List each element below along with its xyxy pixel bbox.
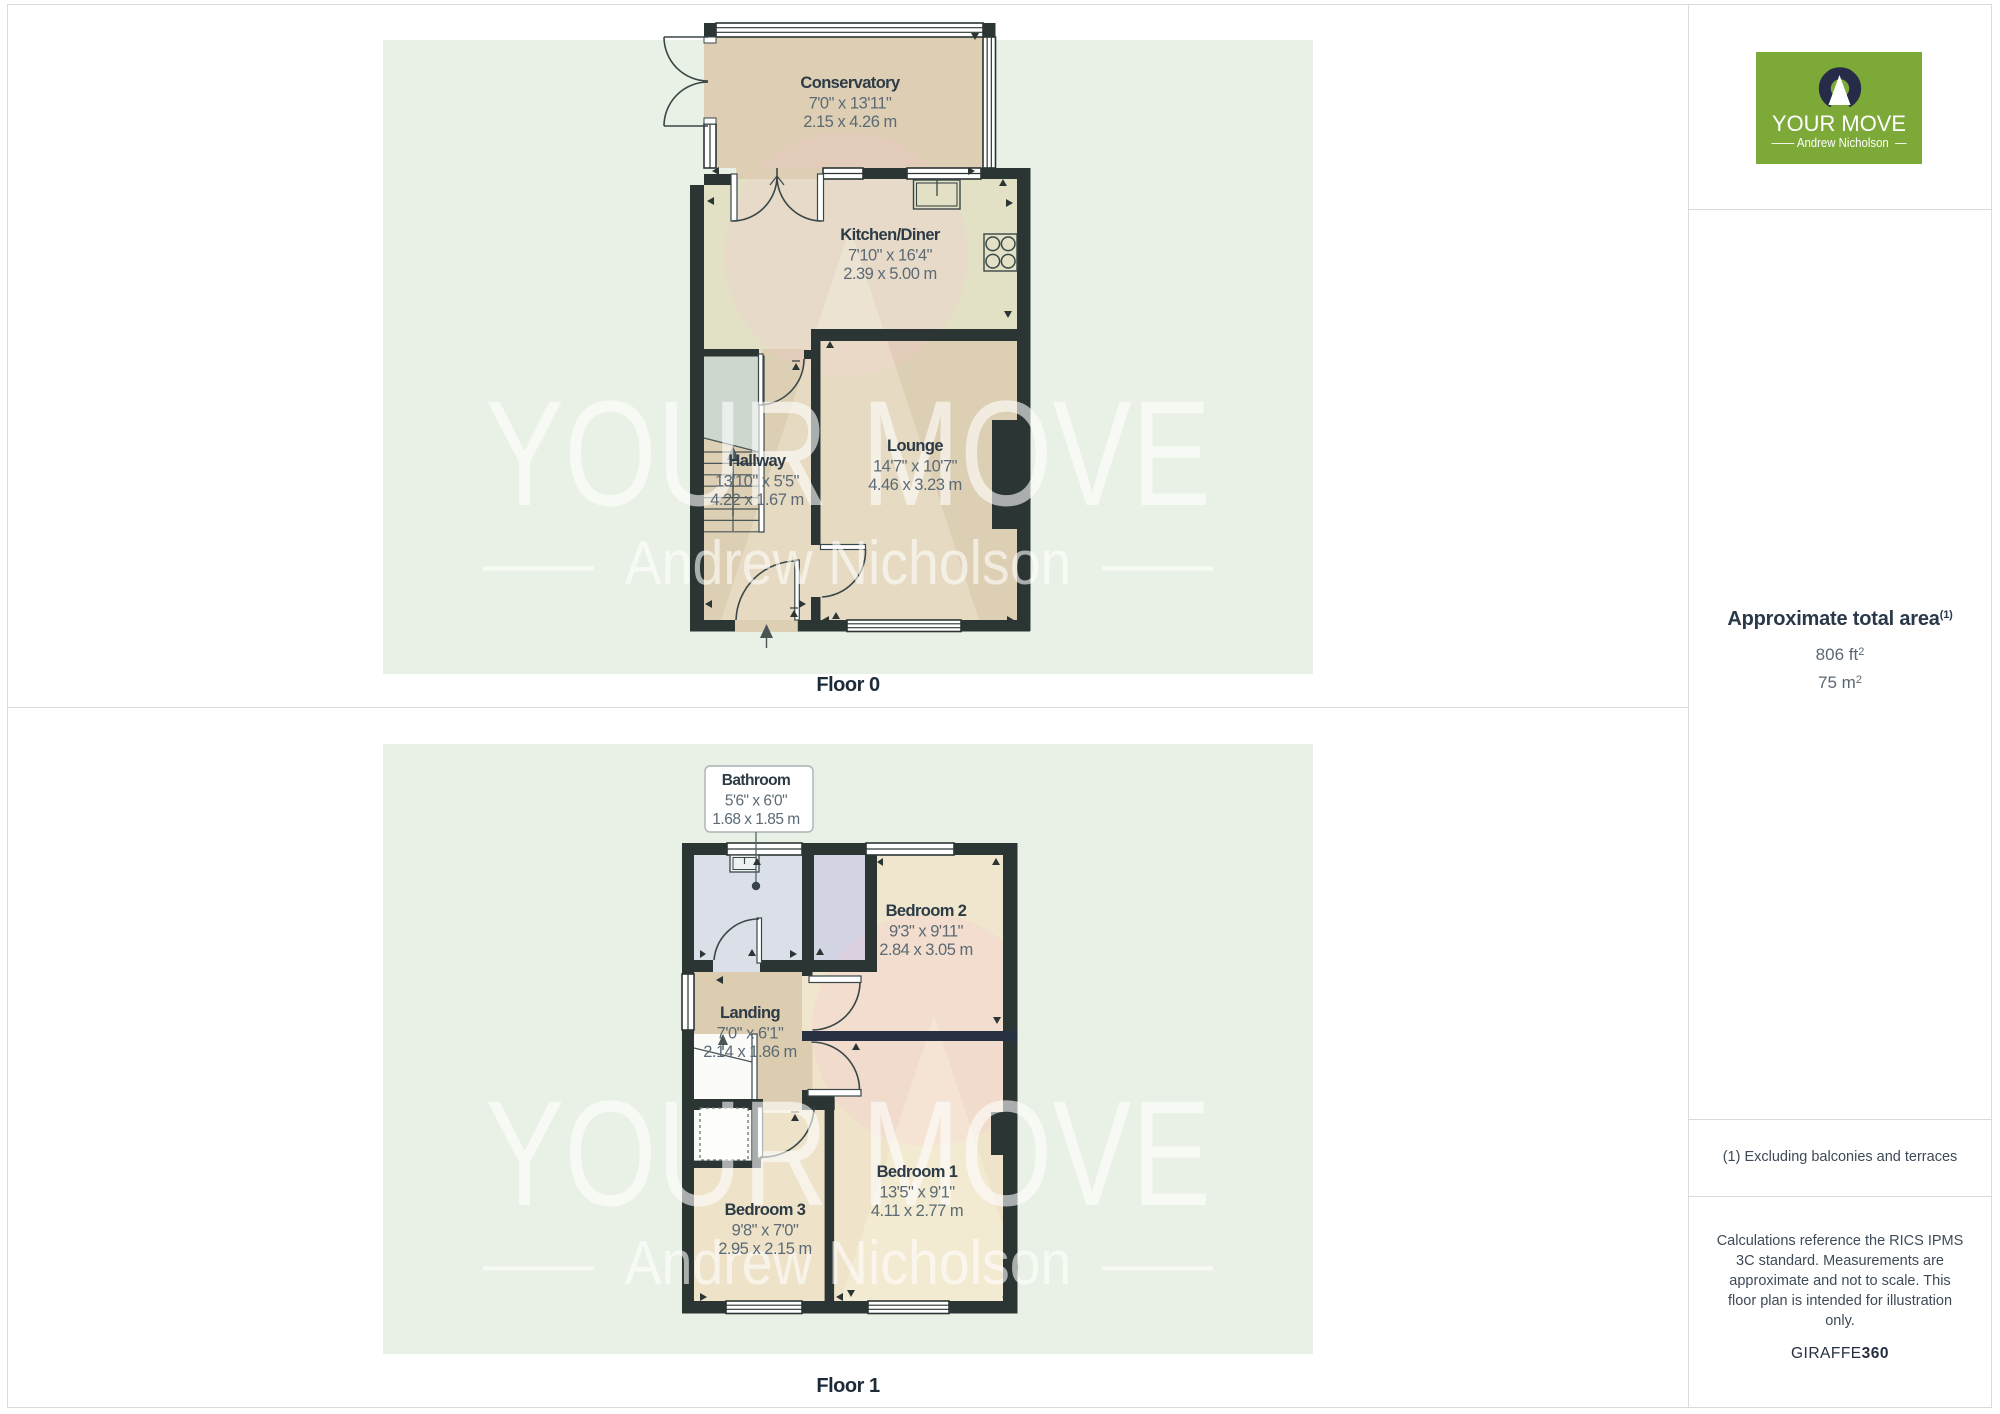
- svg-text:7'0" x 13'11": 7'0" x 13'11": [809, 95, 892, 113]
- svg-text:9'3" x 9'11": 9'3" x 9'11": [889, 923, 964, 941]
- svg-text:1.68 x 1.85 m: 1.68 x 1.85 m: [712, 811, 799, 828]
- svg-text:7'0" x 6'1": 7'0" x 6'1": [717, 1025, 784, 1043]
- svg-text:4.11 x 2.77 m: 4.11 x 2.77 m: [871, 1202, 963, 1220]
- svg-text:2.84 x 3.05 m: 2.84 x 3.05 m: [879, 941, 972, 959]
- svg-text:Hallway: Hallway: [728, 452, 787, 470]
- svg-text:Landing: Landing: [720, 1004, 780, 1022]
- svg-text:—— Andrew Nicholson ——: —— Andrew Nicholson ——: [483, 1229, 1213, 1298]
- svg-text:2.15 x 4.26 m: 2.15 x 4.26 m: [803, 113, 896, 131]
- svg-text:9'8" x 7'0": 9'8" x 7'0": [732, 1222, 799, 1240]
- svg-text:4.22 x 1.67 m: 4.22 x 1.67 m: [710, 491, 803, 509]
- svg-text:Bathroom: Bathroom: [722, 772, 790, 789]
- svg-text:14'7" x 10'7": 14'7" x 10'7": [873, 458, 958, 476]
- svg-text:Bedroom 2: Bedroom 2: [886, 902, 967, 920]
- svg-text:YOUR MOVE: YOUR MOVE: [485, 369, 1211, 537]
- svg-text:2.14 x 1.86 m: 2.14 x 1.86 m: [703, 1043, 796, 1061]
- svg-text:Conservatory: Conservatory: [800, 74, 901, 92]
- svg-text:Floor 0: Floor 0: [816, 674, 880, 696]
- svg-text:Bedroom 3: Bedroom 3: [725, 1201, 806, 1219]
- svg-text:2.95 x 2.15 m: 2.95 x 2.15 m: [718, 1240, 811, 1258]
- svg-text:4.46 x 3.23 m: 4.46 x 3.23 m: [868, 476, 961, 494]
- svg-text:2.39 x 5.00 m: 2.39 x 5.00 m: [843, 265, 936, 283]
- svg-text:13'5" x 9'1": 13'5" x 9'1": [879, 1184, 955, 1202]
- svg-text:7'10" x 16'4": 7'10" x 16'4": [848, 247, 933, 265]
- svg-text:13'10" x 5'5": 13'10" x 5'5": [715, 473, 800, 491]
- svg-text:5'6" x 6'0": 5'6" x 6'0": [725, 793, 787, 810]
- svg-text:Floor 1: Floor 1: [816, 1375, 880, 1397]
- svg-text:Lounge: Lounge: [887, 437, 943, 455]
- svg-text:—— Andrew Nicholson ——: —— Andrew Nicholson ——: [483, 529, 1213, 598]
- svg-text:YOUR MOVE: YOUR MOVE: [485, 1069, 1211, 1237]
- svg-text:Bedroom 1: Bedroom 1: [877, 1163, 958, 1181]
- svg-text:Kitchen/Diner: Kitchen/Diner: [840, 226, 941, 244]
